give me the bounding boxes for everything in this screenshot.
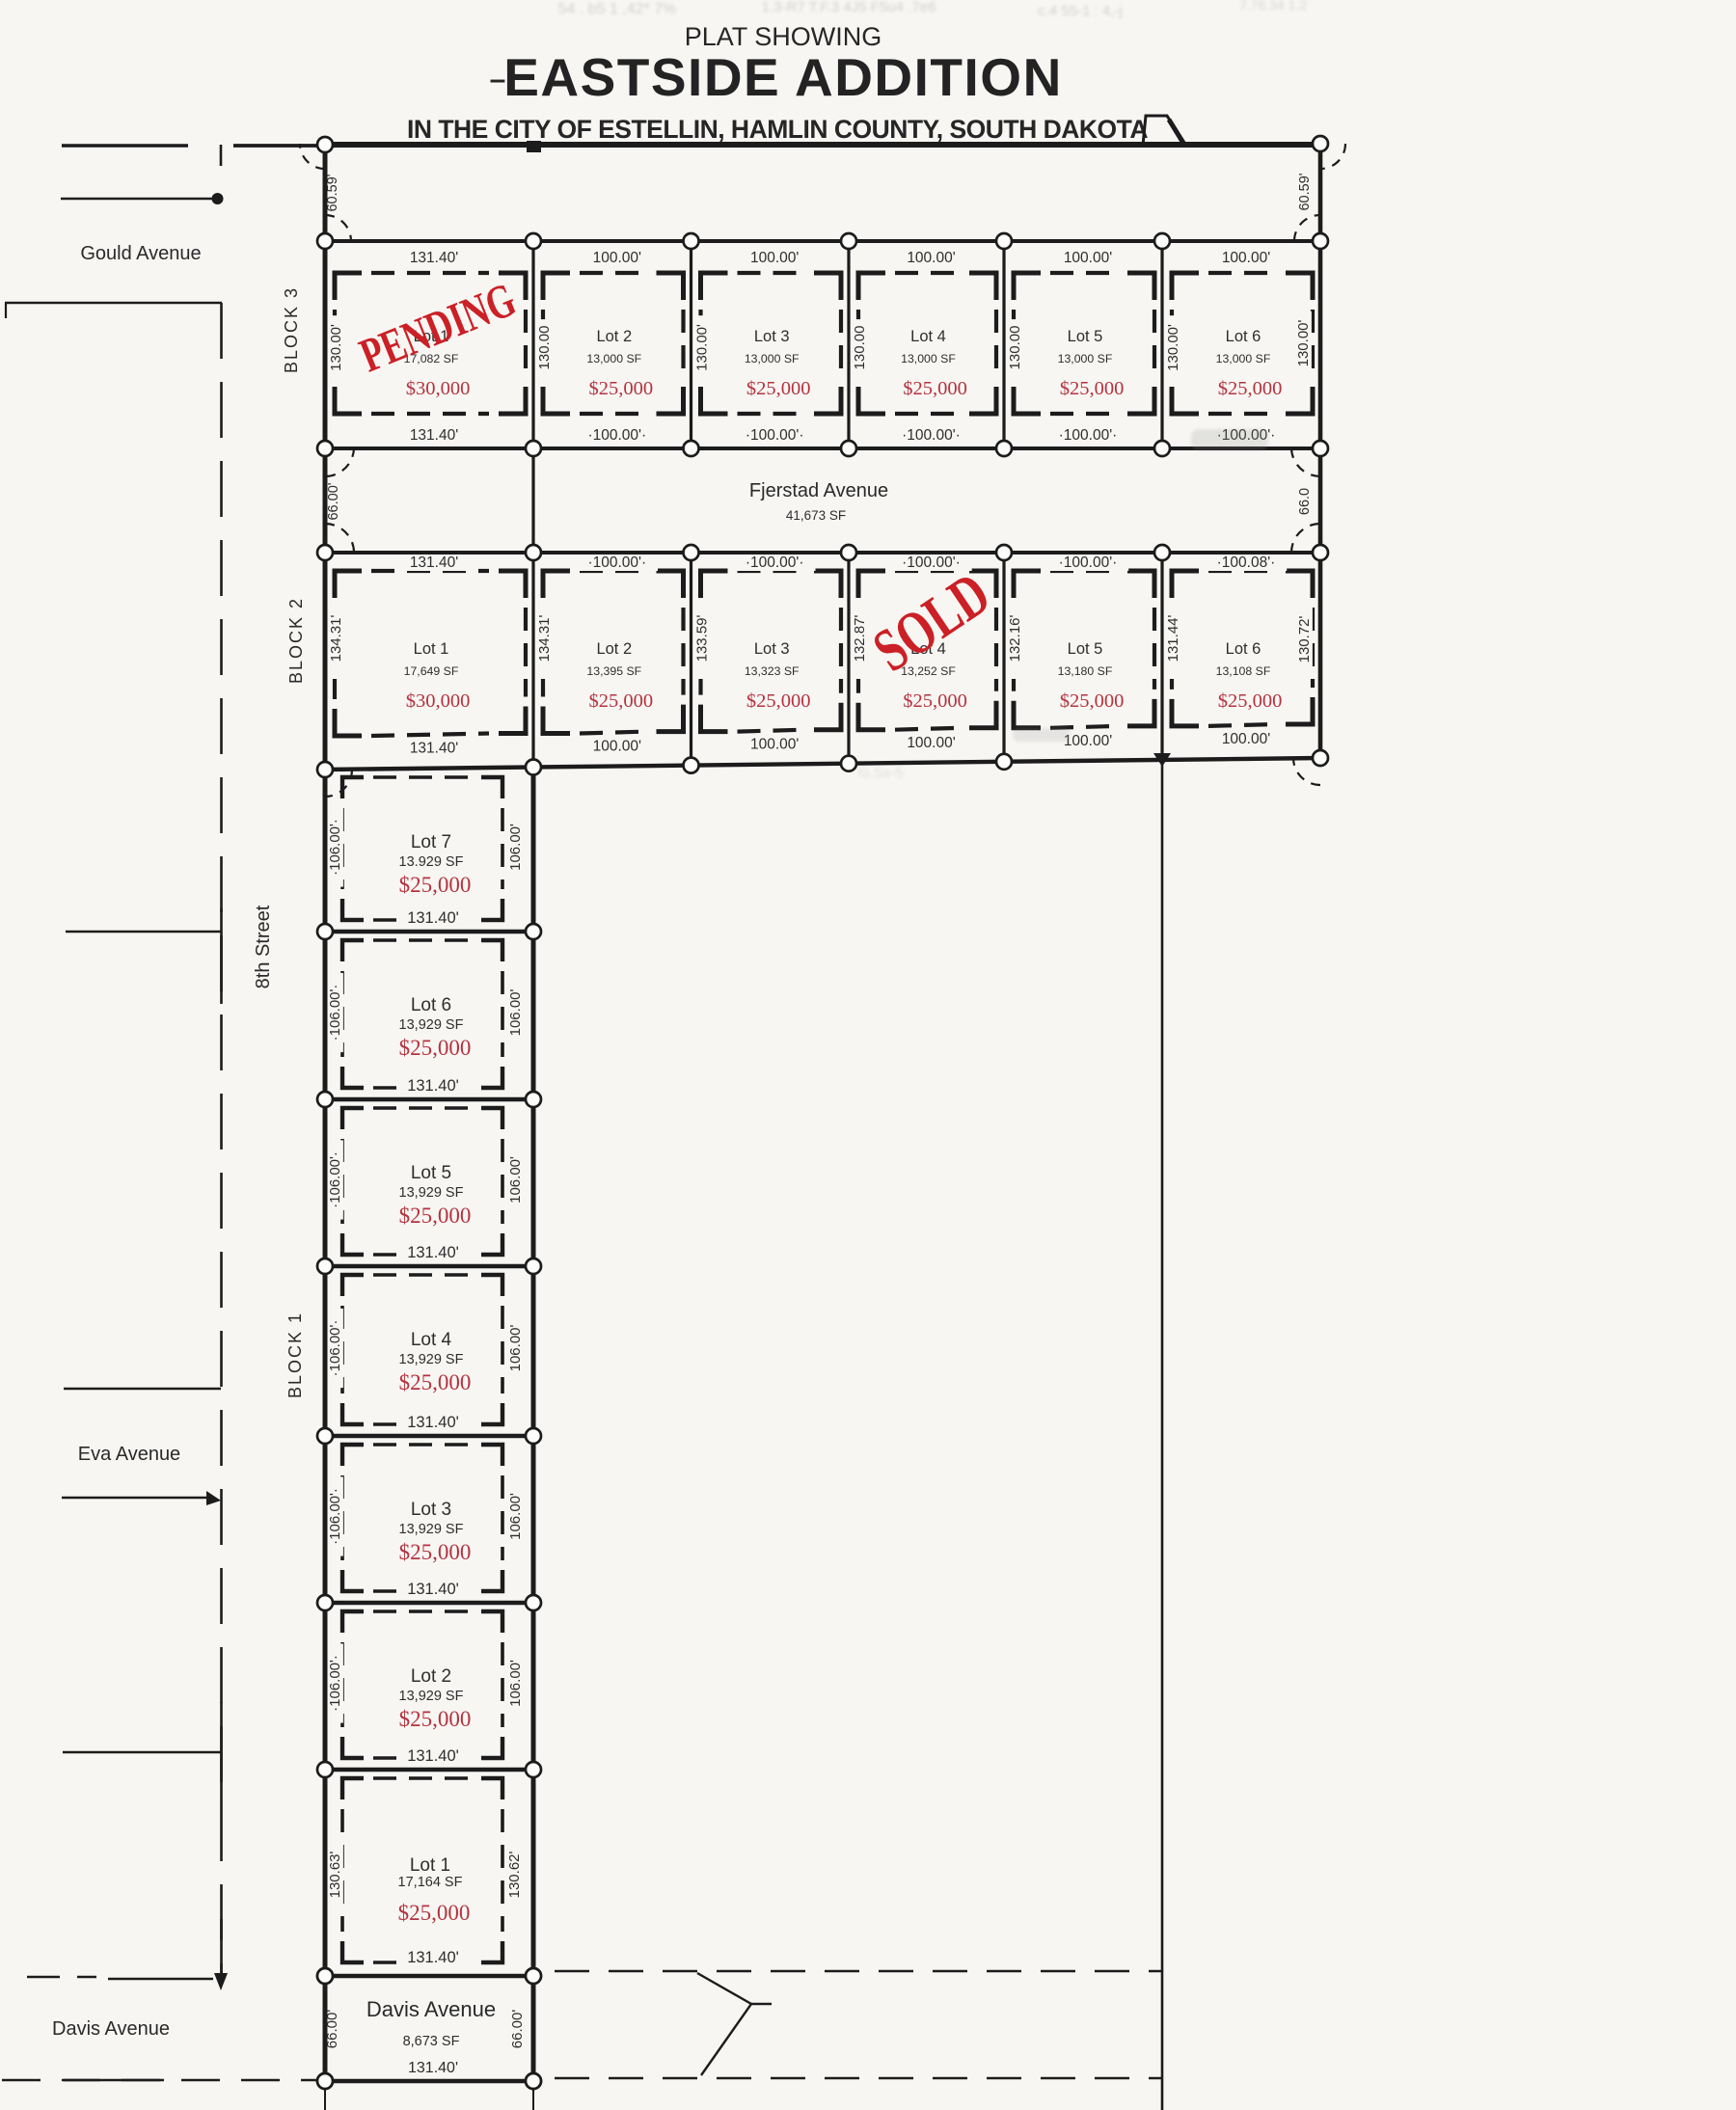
svg-text:131.40': 131.40' (410, 250, 458, 266)
svg-text:·100.00'·: ·100.00'· (587, 427, 646, 444)
svg-text:7.76.34 1.2: 7.76.34 1.2 (1239, 0, 1307, 13)
svg-text:Lot 5: Lot 5 (411, 1163, 451, 1183)
svg-text:Lot 5: Lot 5 (1068, 640, 1103, 658)
svg-text:$25,000: $25,000 (399, 1036, 472, 1060)
svg-text:17,649 SF: 17,649 SF (404, 664, 459, 678)
svg-text:66.0: 66.0 (1297, 488, 1313, 515)
svg-text:Lot 6: Lot 6 (1226, 328, 1261, 345)
svg-text:Davis Avenue: Davis Avenue (52, 2018, 170, 2040)
svg-text:130.00': 130.00' (1165, 324, 1181, 371)
svg-text:13,395 SF: 13,395 SF (586, 664, 641, 678)
svg-text:$25,000: $25,000 (746, 378, 811, 399)
svg-text:13.929 SF: 13.929 SF (399, 854, 464, 870)
svg-text:131.40': 131.40' (407, 1414, 459, 1431)
svg-text:130.00: 130.00 (852, 326, 868, 370)
svg-text:·106.00'·: ·106.00'· (327, 1488, 343, 1545)
svg-text:130.72': 130.72' (1296, 615, 1313, 663)
svg-text:131.40': 131.40' (407, 1581, 459, 1598)
svg-text:·100.00'·: ·100.00'· (1059, 555, 1118, 571)
svg-text:131.44': 131.44' (1165, 614, 1181, 662)
svg-text:Lot 2: Lot 2 (411, 1666, 451, 1687)
svg-text:13,929 SF: 13,929 SF (399, 1522, 464, 1537)
svg-text:BLOCK 3: BLOCK 3 (282, 286, 301, 373)
svg-text:8,673 SF: 8,673 SF (403, 2034, 460, 2049)
svg-text:13,929 SF: 13,929 SF (399, 1352, 464, 1367)
svg-text:·106.00'·: ·106.00'· (327, 1655, 343, 1712)
svg-text:8th Street: 8th Street (253, 905, 274, 988)
svg-text:BLOCK 1: BLOCK 1 (285, 1312, 305, 1398)
svg-text:60.59': 60.59' (1297, 173, 1313, 210)
svg-text:$25,000: $25,000 (399, 1370, 472, 1394)
svg-text:66.00': 66.00' (509, 2010, 526, 2049)
svg-text:54 . b5 1 ,42* 7%: 54 . b5 1 ,42* 7% (558, 1, 677, 17)
svg-text:·106.00'·: ·106.00'· (327, 1151, 343, 1208)
svg-text:134.31': 134.31' (536, 614, 553, 662)
svg-text:100.00': 100.00' (1064, 733, 1112, 749)
svg-text:130.00: 130.00 (536, 326, 553, 370)
svg-text:106.00': 106.00' (507, 988, 524, 1036)
svg-text:Lot 2: Lot 2 (596, 328, 632, 345)
svg-text:Lot 1: Lot 1 (414, 640, 449, 658)
svg-text:Lot 5: Lot 5 (1068, 328, 1103, 345)
svg-text:13,108 SF: 13,108 SF (1216, 664, 1271, 678)
svg-text:131.40': 131.40' (410, 555, 458, 571)
svg-text:13,180 SF: 13,180 SF (1058, 664, 1113, 678)
svg-text:EASTSIDE ADDITION: EASTSIDE ADDITION (503, 47, 1063, 107)
svg-text:$25,000: $25,000 (399, 1540, 472, 1564)
svg-text:131.40': 131.40' (407, 1949, 459, 1966)
svg-text:·100.00'·: ·100.00'· (1059, 427, 1118, 444)
svg-text:100.00': 100.00' (593, 250, 641, 266)
svg-text:1.3-R7 T.F.3 4J5 F5u4 .7e6: 1.3-R7 T.F.3 4J5 F5u4 .7e6 (762, 0, 936, 15)
svg-text:$25,000: $25,000 (746, 690, 811, 712)
svg-text:13,929 SF: 13,929 SF (399, 1017, 464, 1033)
svg-text:132.87': 132.87' (852, 614, 868, 662)
svg-text:130.62': 130.62' (506, 1851, 523, 1898)
svg-text:Lot 7: Lot 7 (411, 832, 451, 852)
svg-text:$25,000: $25,000 (1218, 378, 1283, 399)
svg-text:134.31': 134.31' (328, 614, 344, 662)
svg-text:$25,000: $25,000 (399, 1204, 472, 1228)
svg-text:Lot 6: Lot 6 (1226, 640, 1261, 658)
svg-text:130.63': 130.63' (327, 1851, 343, 1898)
svg-text:Lot 3: Lot 3 (754, 640, 790, 658)
svg-text:Davis Avenue: Davis Avenue (366, 1997, 496, 2021)
svg-text:130.00': 130.00' (328, 324, 344, 371)
svg-text:·100.08'·: ·100.08'· (1217, 555, 1276, 571)
svg-text:·100.00'·: ·100.00'· (902, 427, 961, 444)
svg-text:c.4 55-1 : 4,-j: c.4 55-1 : 4,-j (1038, 3, 1123, 19)
svg-text:Lot 3: Lot 3 (411, 1500, 451, 1520)
svg-text:100.00': 100.00' (907, 735, 955, 751)
svg-text:100.00': 100.00' (593, 739, 641, 755)
svg-text:Fjerstad Avenue: Fjerstad Avenue (749, 480, 888, 501)
svg-text:·106.00'·: ·106.00'· (327, 819, 343, 876)
svg-text:BLOCK 2: BLOCK 2 (286, 597, 306, 684)
svg-text:131.40': 131.40' (410, 741, 458, 757)
svg-text:Lot 6: Lot 6 (411, 995, 451, 1015)
svg-text:13,929 SF: 13,929 SF (399, 1689, 464, 1704)
svg-text:13,000 SF: 13,000 SF (1216, 352, 1271, 365)
svg-text:Lot 4: Lot 4 (910, 328, 946, 345)
svg-text:100.00': 100.00' (750, 250, 799, 266)
svg-text:106.00': 106.00' (507, 1156, 524, 1204)
svg-text:131.40': 131.40' (407, 1077, 459, 1095)
svg-text:$25,000: $25,000 (1060, 378, 1125, 399)
svg-text:41,673 SF: 41,673 SF (786, 508, 846, 523)
svg-text:131.40': 131.40' (407, 1747, 459, 1765)
svg-text:106.00': 106.00' (507, 824, 524, 871)
svg-text:131.40': 131.40' (407, 1244, 459, 1261)
svg-text:13,323 SF: 13,323 SF (745, 664, 800, 678)
svg-text:100.00': 100.00' (1064, 250, 1112, 266)
svg-text:·106.00'·: ·106.00'· (327, 1320, 343, 1377)
svg-text:131.40': 131.40' (408, 2060, 458, 2076)
svg-text:66.00': 66.00' (326, 482, 341, 520)
svg-text:Lot 4: Lot 4 (411, 1330, 452, 1350)
svg-text:131.40': 131.40' (410, 427, 458, 444)
svg-text:·106.00'·: ·106.00'· (327, 985, 343, 1041)
svg-text:$25,000: $25,000 (588, 378, 653, 399)
svg-text:$25,000: $25,000 (588, 690, 653, 712)
svg-text:G.Sx-5: G.Sx-5 (858, 765, 904, 781)
svg-text:100.00': 100.00' (907, 250, 955, 266)
svg-text:13,000 SF: 13,000 SF (901, 352, 956, 365)
svg-text:100.00': 100.00' (1222, 250, 1270, 266)
svg-text:$30,000: $30,000 (406, 378, 471, 399)
svg-text:Lot 3: Lot 3 (754, 328, 790, 345)
svg-text:$25,000: $25,000 (398, 1901, 471, 1925)
svg-text:$25,000: $25,000 (1218, 690, 1283, 712)
svg-text:$25,000: $25,000 (1060, 690, 1125, 712)
svg-text:IN THE CITY OF ESTELLIN, HAMLI: IN THE CITY OF ESTELLIN, HAMLIN COUNTY, … (407, 115, 1148, 144)
svg-text:130.00': 130.00' (694, 324, 711, 371)
svg-text:130.00: 130.00 (1007, 326, 1023, 370)
svg-text:$25,000: $25,000 (399, 1707, 472, 1731)
svg-text:13,000 SF: 13,000 SF (745, 352, 800, 365)
svg-text:100.00': 100.00' (1222, 731, 1270, 747)
svg-text:$25,000: $25,000 (903, 378, 967, 399)
svg-text:66.00': 66.00' (324, 2010, 340, 2049)
svg-text:13,000 SF: 13,000 SF (1058, 352, 1113, 365)
svg-text:Lot 1: Lot 1 (410, 1855, 450, 1876)
svg-text:$30,000: $30,000 (406, 690, 471, 712)
svg-text:$25,000: $25,000 (903, 690, 967, 712)
svg-text:$25,000: $25,000 (399, 873, 472, 897)
svg-text:Eva Avenue: Eva Avenue (78, 1444, 180, 1465)
svg-text:Gould Avenue: Gould Avenue (80, 243, 201, 264)
svg-text:131.40': 131.40' (407, 909, 459, 927)
svg-text:132.16': 132.16' (1007, 614, 1023, 662)
svg-text:106.00': 106.00' (507, 1493, 524, 1540)
svg-text:·100.00'·: ·100.00'· (587, 555, 646, 571)
svg-text:100.00': 100.00' (750, 737, 799, 753)
svg-text:13,000 SF: 13,000 SF (586, 352, 641, 365)
svg-text:106.00': 106.00' (507, 1660, 524, 1707)
svg-text:106.00': 106.00' (507, 1324, 524, 1371)
svg-text:Lot 2: Lot 2 (596, 640, 632, 658)
svg-text:133.59': 133.59' (694, 614, 711, 662)
svg-text:·100.00'·: ·100.00'· (746, 555, 804, 571)
svg-text:130.00': 130.00' (1295, 319, 1312, 366)
svg-text:13,929 SF: 13,929 SF (399, 1185, 464, 1201)
svg-text:·100.00'·: ·100.00'· (746, 427, 804, 444)
svg-text:17,164 SF: 17,164 SF (398, 1875, 463, 1890)
